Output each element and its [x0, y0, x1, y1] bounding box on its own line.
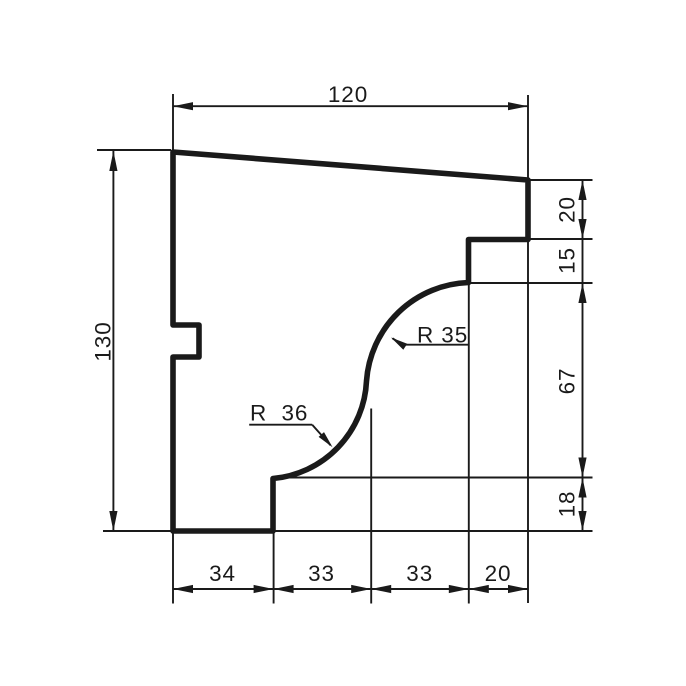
svg-text:33: 33 — [308, 561, 335, 586]
svg-text:15: 15 — [554, 247, 579, 274]
svg-text:18: 18 — [554, 491, 579, 518]
svg-text:R 36: R 36 — [250, 400, 308, 425]
svg-text:20: 20 — [554, 196, 579, 223]
svg-text:33: 33 — [406, 561, 433, 586]
svg-text:67: 67 — [554, 368, 579, 395]
svg-text:130: 130 — [91, 321, 116, 361]
svg-text:20: 20 — [485, 561, 512, 586]
svg-text:120: 120 — [328, 82, 368, 107]
svg-text:34: 34 — [209, 561, 236, 586]
svg-text:R 35: R 35 — [417, 322, 468, 347]
